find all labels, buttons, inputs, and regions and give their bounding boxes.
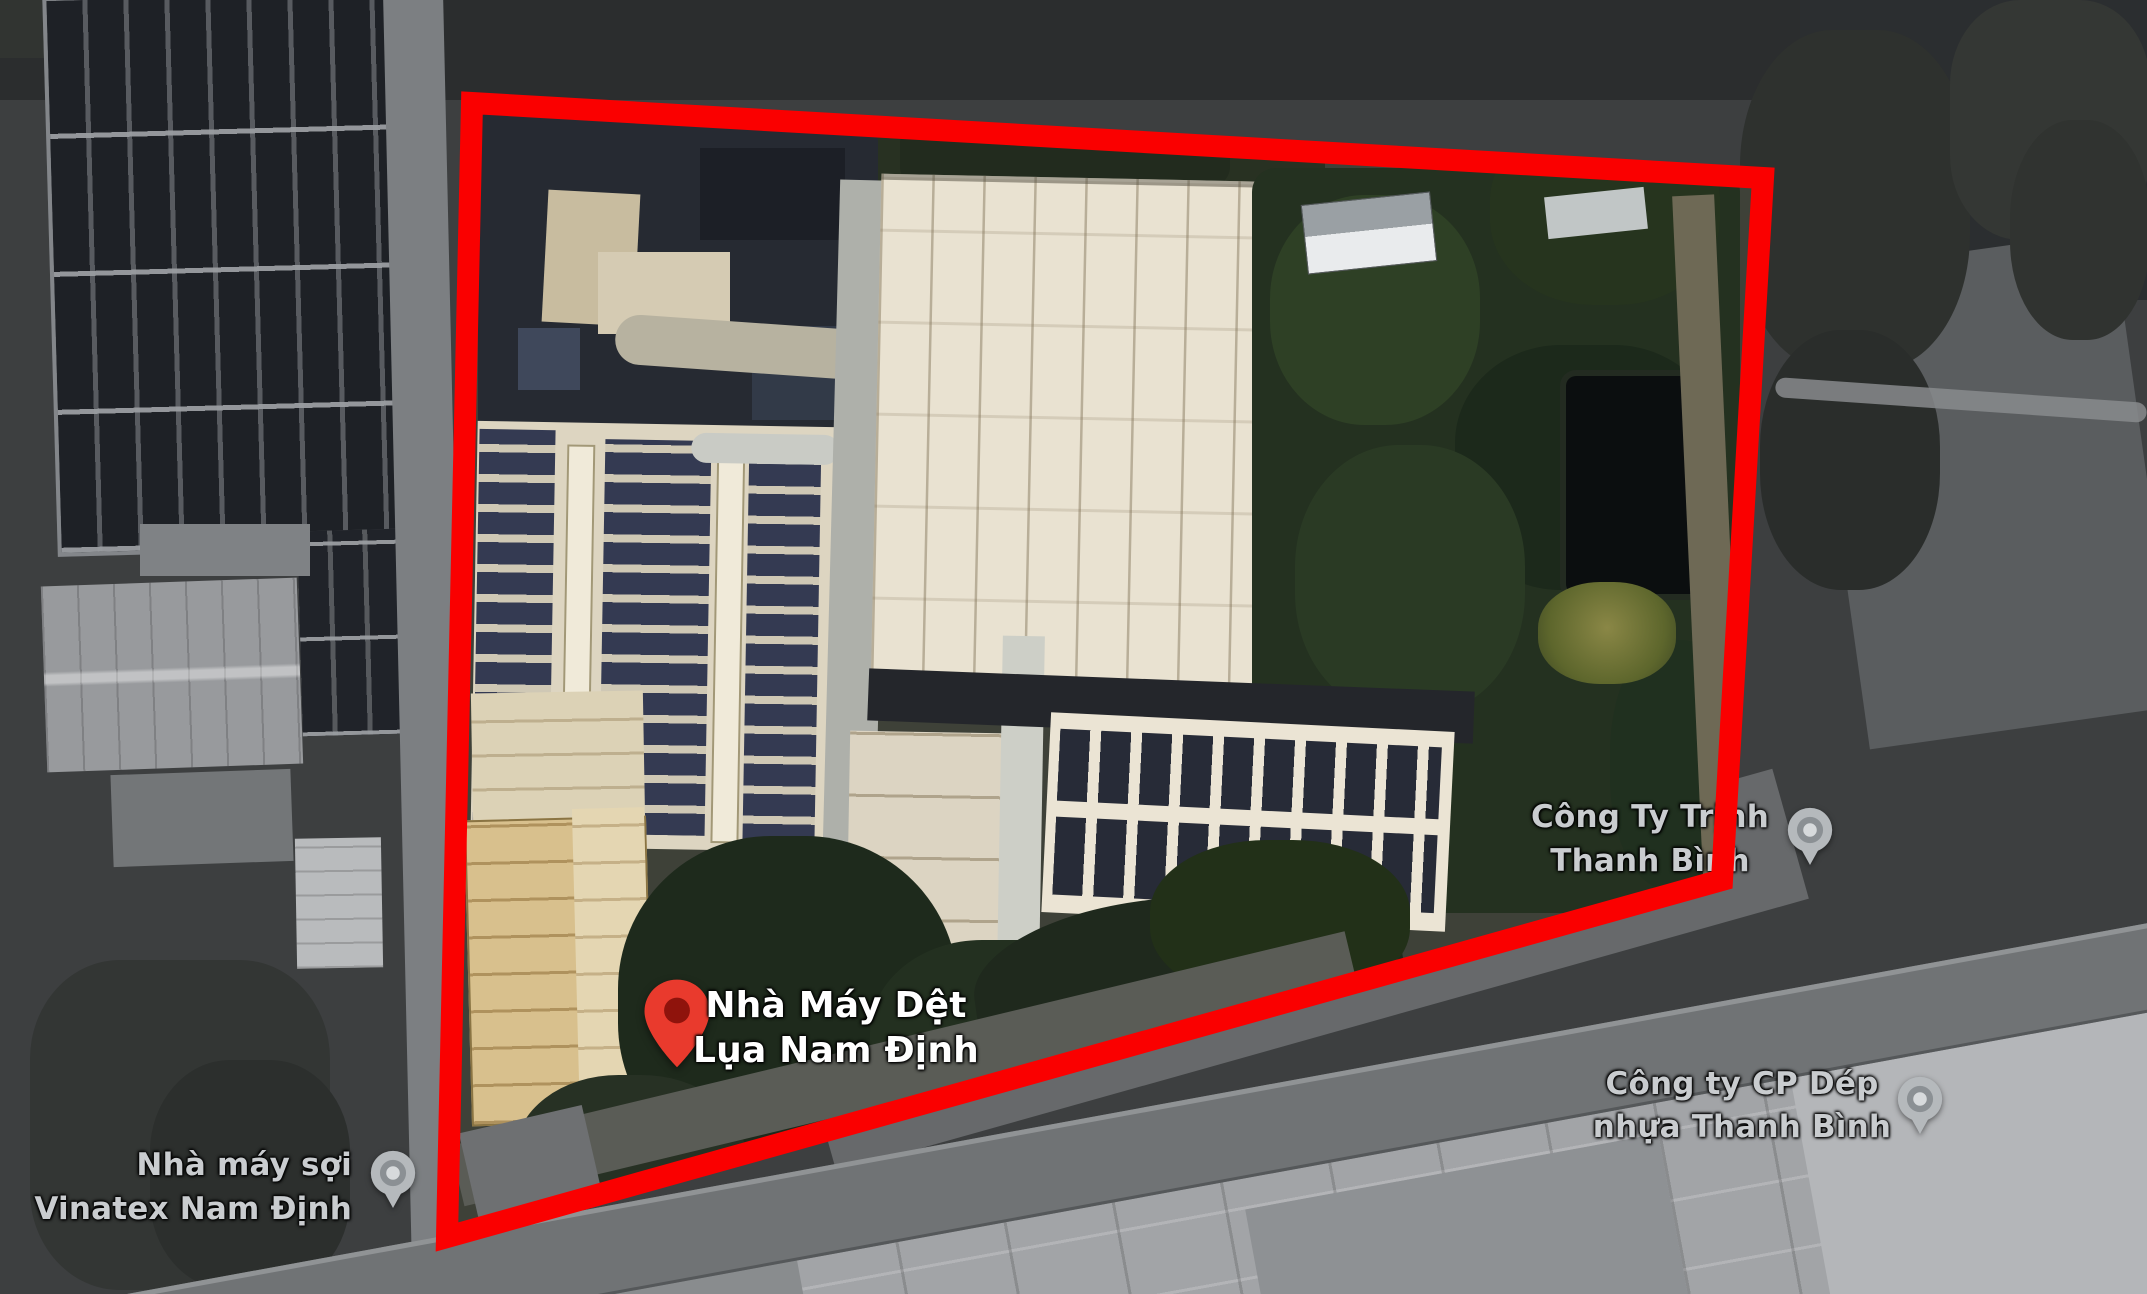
industrial-structure-1: [700, 148, 845, 240]
trees-right-1: [1740, 30, 1970, 370]
trees-right-4: [2010, 120, 2147, 340]
place-label-line2: nhựa Thanh Bình: [1562, 1106, 1922, 1149]
tree-cluster-3: [1295, 445, 1525, 715]
place-label-line1: Nhà Máy Dệt: [676, 983, 996, 1028]
warehouse-gray-left: [41, 578, 303, 773]
place-label-line2: Lụa Nam Định: [676, 1028, 996, 1073]
place-label-line1: Công Ty Trịnh: [1480, 795, 1820, 839]
place-label-line2: Thanh Bình: [1480, 839, 1820, 883]
place-label-line1: Công ty CP Dép: [1562, 1063, 1922, 1106]
place-label-nha-may-det-lua-nam-dinh[interactable]: Nhà Máy Dệt Lụa Nam Định: [676, 983, 996, 1073]
tan-building-upper: [471, 691, 645, 826]
place-label-trinh-thanh-binh[interactable]: Công Ty Trịnh Thanh Bình: [1480, 795, 1820, 883]
grass-clearing: [1538, 582, 1676, 684]
industrial-structure-3: [518, 328, 580, 390]
roof-vent: [691, 433, 840, 466]
place-label-line1: Nhà máy sợi: [22, 1143, 352, 1187]
solar-panel-strip-top: [1057, 729, 1442, 820]
roadside-structures: [140, 524, 310, 576]
solar-farm-rooftop-extension: [297, 529, 405, 737]
solar-panel-rows-3: [742, 446, 821, 847]
warehouse-cream-main: [871, 174, 1302, 701]
satellite-map-canvas[interactable]: Nhà Máy Dệt Lụa Nam Định Công Ty Trịnh T…: [0, 0, 2147, 1294]
trees-right-3: [1760, 330, 1940, 590]
roof-skylight-strip-2: [710, 447, 745, 843]
shed-by-road: [295, 837, 383, 968]
sheds-gray-left: [110, 769, 293, 867]
place-label-line2: Vinatex Nam Định: [22, 1187, 352, 1231]
poi-marker-vinatex[interactable]: [365, 1147, 421, 1213]
place-label-cp-dep-nhua-thanh-binh[interactable]: Công ty CP Dép nhựa Thanh Bình: [1562, 1063, 1922, 1149]
white-gable-building: [1301, 191, 1438, 274]
place-label-vinatex-nam-dinh[interactable]: Nhà máy sợi Vinatex Nam Định: [22, 1143, 352, 1231]
solar-farm-rooftop: [42, 0, 417, 557]
